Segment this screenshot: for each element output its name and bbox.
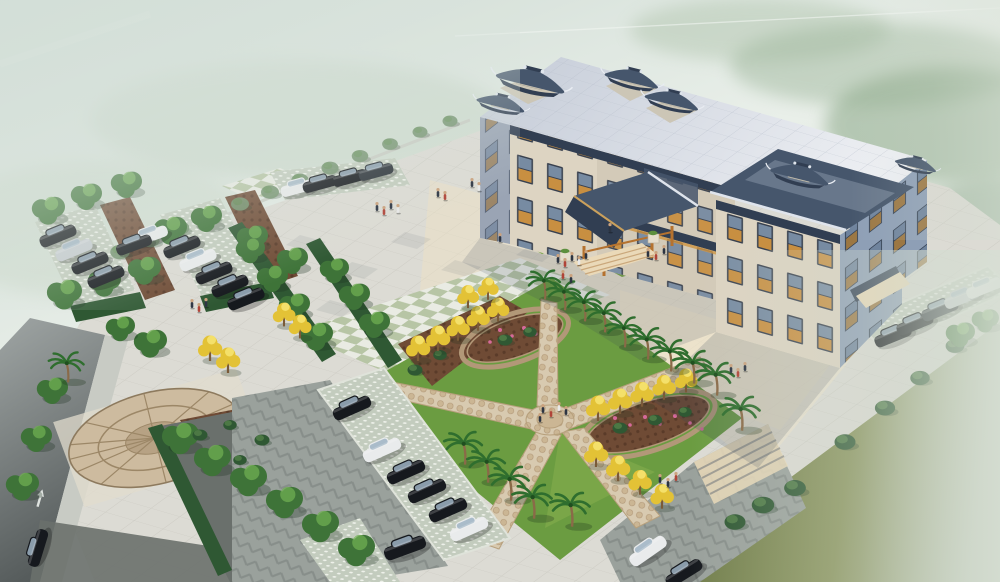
planter [648, 234, 659, 243]
site-plan-svg [0, 0, 1000, 582]
architectural-rendering [0, 0, 1000, 582]
fog-bottom-right [690, 250, 1000, 582]
planter-shrub [561, 249, 570, 253]
fog-right [850, 0, 1000, 240]
planter-shrub [649, 231, 658, 235]
fog-top-left [0, 0, 520, 310]
